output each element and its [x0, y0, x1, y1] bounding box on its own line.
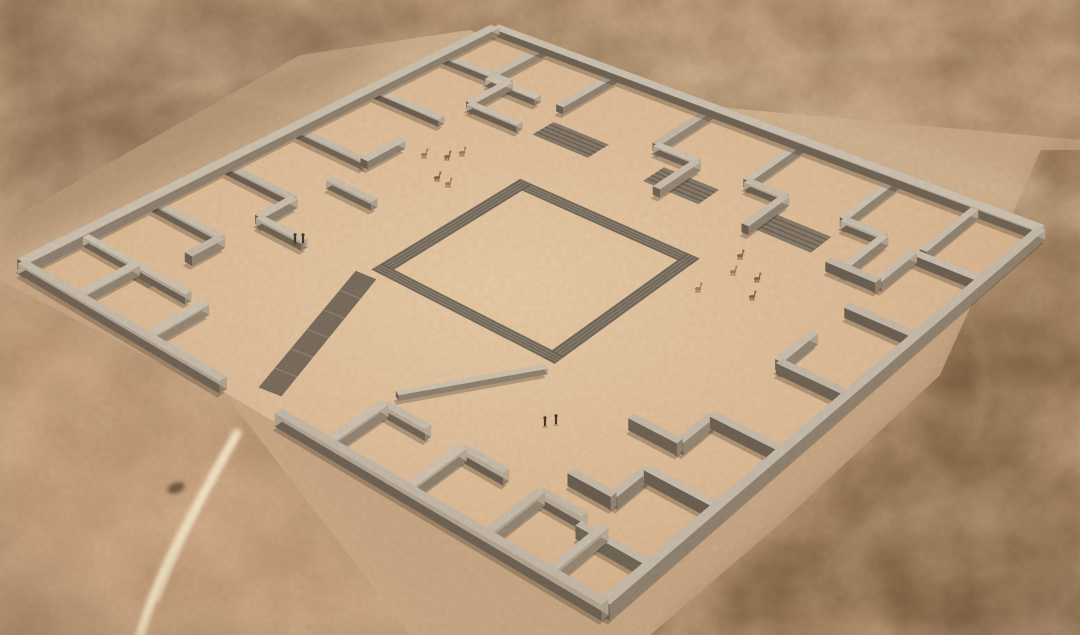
desert-compound-photo: [0, 0, 1080, 635]
vignette: [0, 0, 1080, 635]
aerial-scene: [0, 0, 1080, 635]
photo-texture-overlay: [0, 0, 1080, 635]
